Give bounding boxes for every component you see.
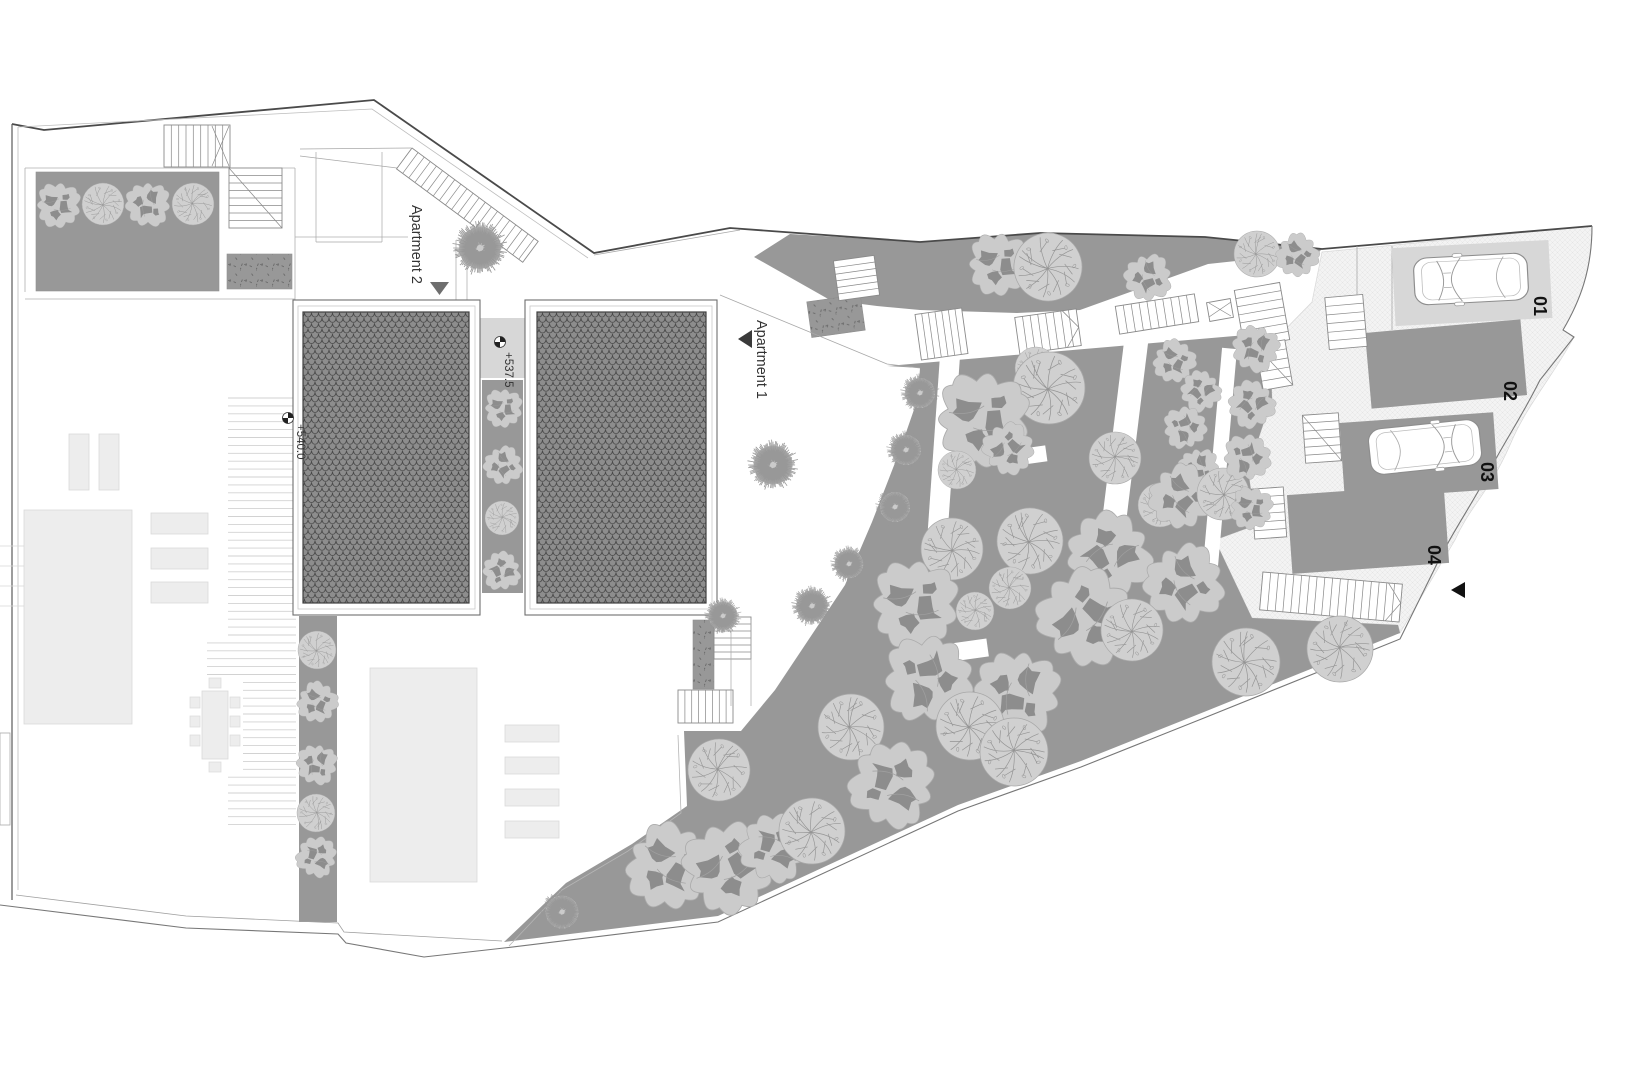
svg-text:+540.0: +540.0 [294, 424, 306, 460]
svg-text:+537.5: +537.5 [502, 352, 514, 388]
svg-text:Apartment 2: Apartment 2 [408, 205, 424, 284]
svg-text:01: 01 [1530, 296, 1550, 316]
svg-text:02: 02 [1500, 381, 1520, 401]
svg-text:Apartment 1: Apartment 1 [753, 320, 769, 399]
svg-text:04: 04 [1424, 545, 1444, 565]
svg-text:03: 03 [1477, 462, 1497, 482]
